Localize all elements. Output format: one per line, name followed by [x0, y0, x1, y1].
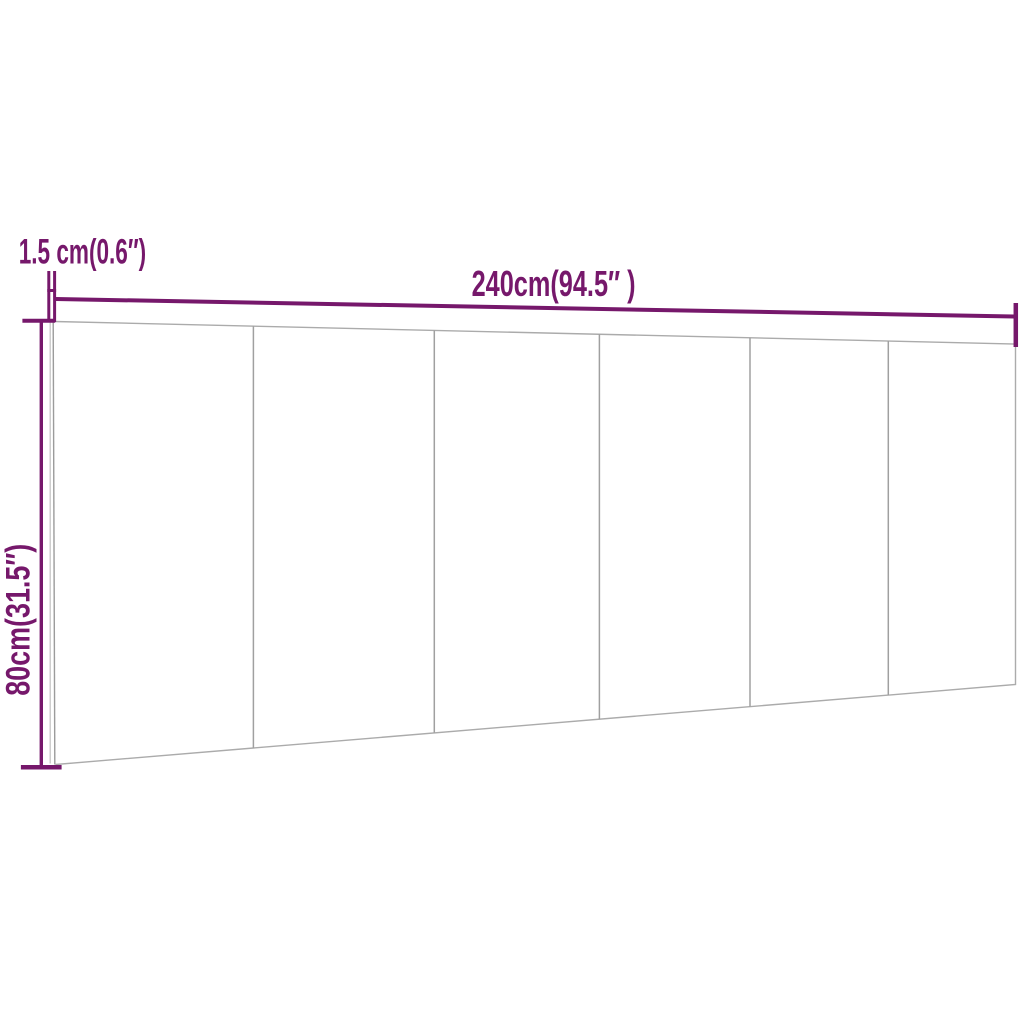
svg-text:80cm(31.5″): 80cm(31.5″)	[0, 544, 37, 696]
svg-text:1.5 cm(0.6″): 1.5 cm(0.6″)	[19, 233, 147, 272]
svg-text:240cm(94.5″ ): 240cm(94.5″ )	[472, 263, 636, 304]
